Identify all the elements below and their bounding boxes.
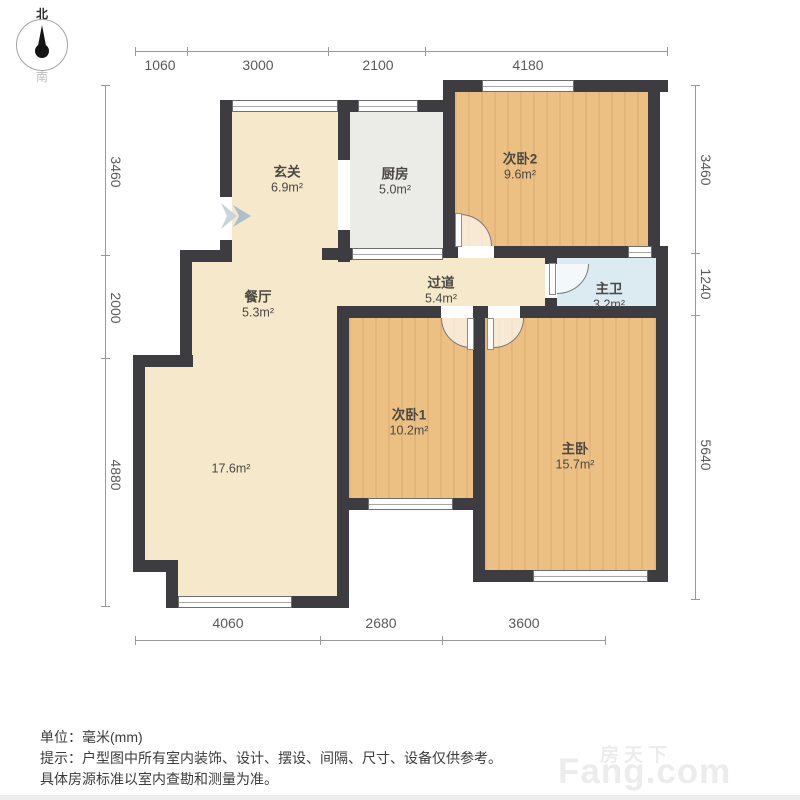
entrance-arrow-icon xyxy=(219,201,255,231)
compass-needle-dot xyxy=(35,44,49,58)
dim-top-2100: 2100 xyxy=(362,57,393,73)
compass-south-label: 南 xyxy=(22,68,62,85)
wall xyxy=(322,248,352,260)
dim-tick xyxy=(691,599,700,600)
dim-line-bottom xyxy=(135,640,606,641)
watermark-en: Fang.com xyxy=(558,752,731,792)
dim-tick xyxy=(691,253,700,254)
window xyxy=(178,596,292,608)
wall xyxy=(648,80,660,258)
wall xyxy=(473,318,485,582)
wall xyxy=(338,112,350,160)
dim-tick xyxy=(101,85,110,86)
pass-opening xyxy=(338,160,350,230)
room-label-zhuwei: 主卫 3.2m² xyxy=(593,282,625,313)
dim-tick xyxy=(425,47,426,56)
room-fill-ciwo2 xyxy=(455,92,648,246)
note-tip1: 提示：户型图中所有室内装饰、设计、摆设、间隔、尺寸、设备仅供参考。 xyxy=(40,748,502,769)
room-label-canting: 餐厅 5.3m² xyxy=(242,290,274,321)
door-opening xyxy=(458,246,494,258)
dim-bottom-3600: 3600 xyxy=(508,615,539,631)
dim-top-1060: 1060 xyxy=(144,57,175,73)
wall xyxy=(180,250,192,367)
dim-left-4880: 4880 xyxy=(108,459,124,490)
wall xyxy=(656,246,668,582)
dim-right-5640: 5640 xyxy=(698,439,714,470)
compass: 北 南 xyxy=(6,4,78,84)
floorplan-canvas: 北 南 1060 3000 2100 4180 3460 2000 4880 3… xyxy=(0,0,800,800)
room-label-chufang: 厨房 5.0m² xyxy=(379,167,411,198)
dim-tick xyxy=(691,315,700,316)
dim-line-top xyxy=(135,51,668,52)
door-opening xyxy=(441,306,473,318)
window xyxy=(358,100,418,112)
dim-right-3460: 3460 xyxy=(698,154,714,185)
dim-tick xyxy=(328,47,329,56)
dim-tick xyxy=(320,636,321,645)
dim-tick xyxy=(187,47,188,56)
dim-top-4180: 4180 xyxy=(512,57,543,73)
wall xyxy=(337,318,349,608)
wall xyxy=(133,355,145,572)
dim-tick xyxy=(135,47,136,56)
room-fill-keting-lower xyxy=(178,560,337,596)
dim-tick xyxy=(101,255,110,256)
dim-right-1240: 1240 xyxy=(698,268,714,299)
note-unit: 单位：毫米(mm) xyxy=(40,727,502,748)
window xyxy=(628,246,652,258)
dim-left-2000: 2000 xyxy=(108,292,124,323)
room-label-keting: 17.6m² xyxy=(212,462,251,477)
window xyxy=(482,80,574,92)
room-label-guodao: 过道 5.4m² xyxy=(425,276,457,307)
room-label-ciwo1: 次卧1 10.2m² xyxy=(390,408,429,439)
room-label-ciwo2: 次卧2 9.6m² xyxy=(503,152,538,183)
bottom-strip xyxy=(0,795,800,800)
room-label-zhuwo: 主卧 15.7m² xyxy=(556,442,595,473)
dim-bottom-4060: 4060 xyxy=(212,615,243,631)
kitchen-slider xyxy=(352,248,443,260)
window xyxy=(533,570,648,582)
dim-line-left xyxy=(105,85,106,607)
dim-tick xyxy=(442,636,443,645)
window xyxy=(368,498,453,510)
wall xyxy=(443,92,455,258)
dim-line-right xyxy=(695,85,696,600)
dim-tick xyxy=(667,47,668,56)
room-label-xuanguan: 玄关 6.9m² xyxy=(271,165,303,196)
dim-left-3460: 3460 xyxy=(108,156,124,187)
dim-bottom-2680: 2680 xyxy=(365,615,396,631)
note-tip2: 具体房源标准以室内查勘和测量为准。 xyxy=(40,769,502,790)
window xyxy=(232,100,338,112)
door-leaf xyxy=(455,213,462,247)
dim-tick xyxy=(101,606,110,607)
dim-tick xyxy=(101,358,110,359)
dim-top-3000: 3000 xyxy=(242,57,273,73)
door-leaf xyxy=(549,263,556,295)
dim-tick xyxy=(691,85,700,86)
notes: 单位：毫米(mm) 提示：户型图中所有室内装饰、设计、摆设、间隔、尺寸、设备仅供… xyxy=(40,727,502,790)
door-leaf xyxy=(467,318,474,350)
door-leaf xyxy=(487,318,494,350)
dim-tick xyxy=(605,636,606,645)
wall xyxy=(220,100,232,197)
dim-tick xyxy=(135,636,136,645)
door-opening xyxy=(488,306,520,318)
